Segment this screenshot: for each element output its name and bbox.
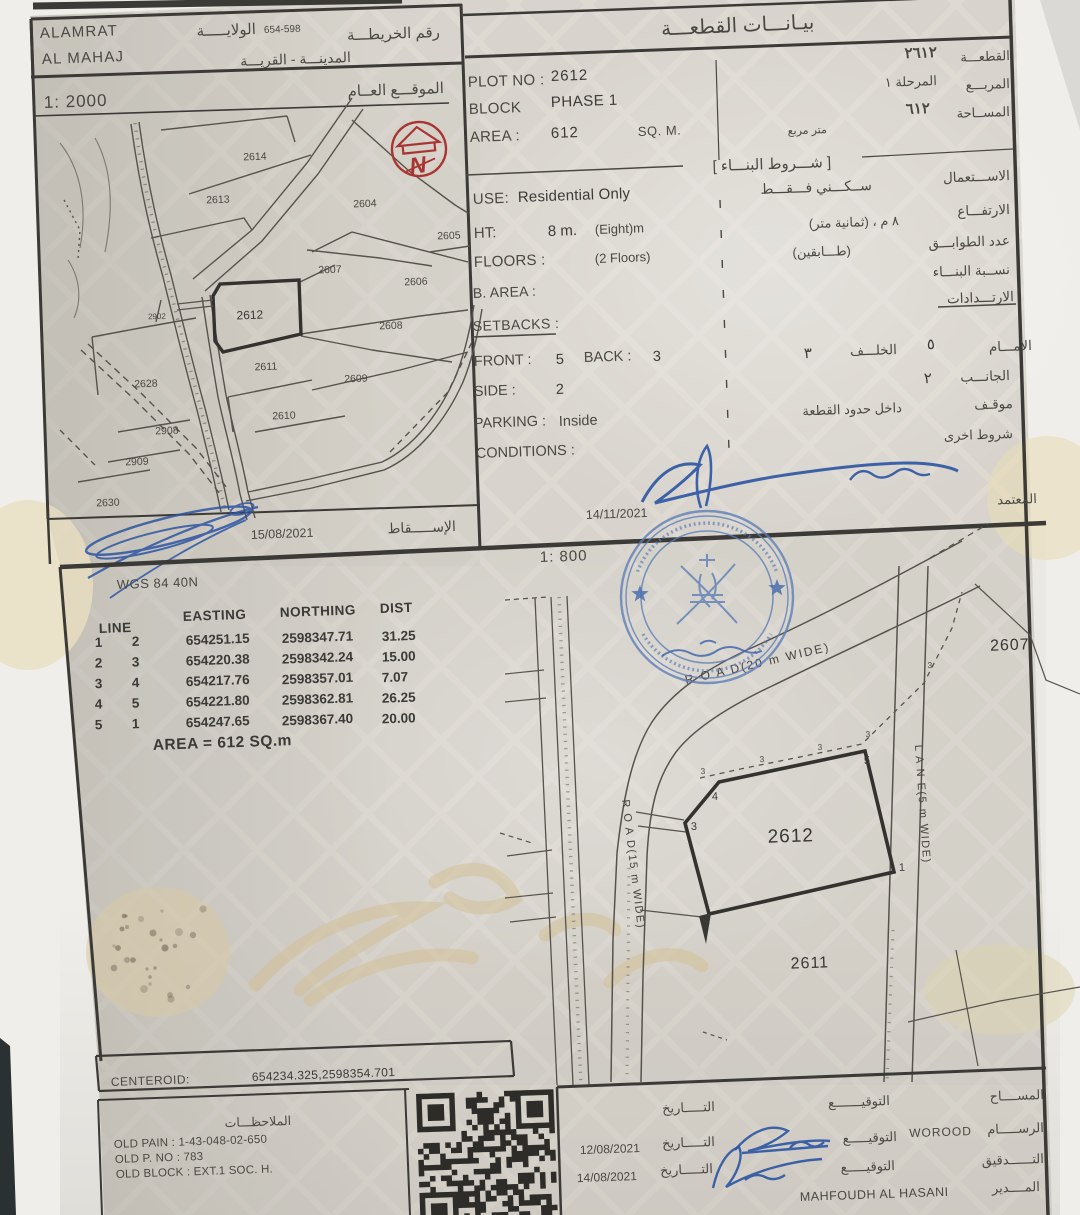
svg-text:5: 5: [95, 717, 104, 732]
svg-text:المســاحة: المســاحة: [956, 104, 1010, 121]
svg-text:2612: 2612: [236, 308, 263, 323]
svg-text:التـــــاريخ: التـــــاريخ: [660, 1161, 713, 1179]
svg-text:2609: 2609: [344, 373, 368, 386]
svg-text:2598342.24: 2598342.24: [282, 649, 354, 666]
svg-text:نســبة البنـــاء: نســبة البنـــاء: [933, 262, 1011, 280]
svg-text:التوقيـــــع: التوقيـــــع: [842, 1129, 897, 1147]
svg-text:2612: 2612: [767, 825, 814, 848]
svg-text:PARKING :: PARKING :: [474, 413, 547, 432]
svg-text:EASTING: EASTING: [183, 607, 247, 624]
svg-text:WOROOD: WOROOD: [909, 1124, 972, 1140]
svg-text:2605: 2605: [437, 230, 461, 243]
svg-text:(2 Floors): (2 Floors): [595, 249, 651, 266]
svg-text:654247.65: 654247.65: [186, 713, 251, 730]
svg-text:Inside: Inside: [559, 413, 598, 430]
svg-text:SQ. M.: SQ. M.: [638, 122, 682, 139]
svg-text:1: 1: [899, 862, 906, 874]
svg-text:الارتفـــاع: الارتفـــاع: [957, 202, 1010, 220]
svg-text:PLOT NO :: PLOT NO :: [468, 71, 545, 91]
svg-text:654220.38: 654220.38: [186, 651, 251, 668]
svg-text:1: 1: [95, 635, 104, 650]
svg-text:20.00: 20.00: [382, 710, 416, 726]
svg-text:LINE: LINE: [99, 620, 132, 636]
svg-text:٦١٢: ٦١٢: [905, 100, 930, 118]
svg-text:3: 3: [759, 754, 764, 764]
svg-text:SIDE :: SIDE :: [474, 383, 516, 400]
svg-text:AREA :: AREA :: [470, 127, 521, 146]
svg-text:12/08/2021: 12/08/2021: [580, 1141, 641, 1157]
svg-text:2598347.71: 2598347.71: [282, 629, 354, 646]
svg-text:2604: 2604: [353, 198, 377, 211]
svg-text:14/11/2021: 14/11/2021: [586, 506, 648, 522]
svg-text:2598362.81: 2598362.81: [282, 690, 354, 707]
svg-text:4: 4: [95, 697, 104, 712]
svg-text:الرســـــام: الرســـــام: [987, 1120, 1044, 1138]
svg-text:31.25: 31.25: [382, 628, 417, 644]
svg-text:2613: 2613: [206, 194, 230, 207]
svg-text:NORTHING: NORTHING: [280, 602, 356, 620]
svg-text:3: 3: [865, 729, 870, 739]
svg-text:3: 3: [132, 654, 141, 669]
svg-text:2630: 2630: [96, 497, 120, 510]
svg-text:٥: ٥: [926, 336, 935, 353]
svg-text:٢٦١٢: ٢٦١٢: [904, 44, 937, 62]
svg-text:4: 4: [132, 675, 141, 690]
svg-text:المربـــع: المربـــع: [965, 76, 1010, 94]
svg-text:المرحلة ١: المرحلة ١: [884, 73, 937, 91]
svg-text:الموقـــع العــام: الموقـــع العــام: [347, 80, 444, 100]
svg-text:654251.15: 654251.15: [186, 631, 251, 648]
svg-text:BLOCK: BLOCK: [469, 99, 522, 118]
svg-text:2611: 2611: [254, 361, 277, 374]
svg-text:2608: 2608: [379, 320, 403, 333]
svg-text:4: 4: [712, 791, 719, 803]
svg-text:2: 2: [132, 634, 140, 649]
svg-text:3: 3: [691, 821, 698, 833]
svg-text:612: 612: [551, 124, 580, 142]
svg-text:الخلـــف: الخلـــف: [850, 342, 897, 359]
svg-text:2: 2: [95, 655, 103, 670]
svg-text:1: 1: [132, 716, 141, 731]
svg-text:2614: 2614: [243, 151, 267, 164]
svg-text:B. AREA :: B. AREA :: [473, 283, 537, 301]
svg-text:التـــــاريخ: التـــــاريخ: [662, 1134, 715, 1152]
svg-text:3: 3: [927, 660, 932, 670]
svg-text:1: 800: 1: 800: [540, 547, 588, 566]
svg-text:الاســـتعمال: الاســـتعمال: [943, 168, 1010, 185]
svg-text:PHASE 1: PHASE 1: [551, 92, 618, 111]
svg-text:5: 5: [132, 696, 141, 711]
svg-text:3: 3: [817, 742, 822, 752]
svg-text:الولايـــــة: الولايـــــة: [196, 21, 256, 40]
svg-text:المعتمد: المعتمد: [997, 491, 1037, 507]
svg-text:موقـف: موقـف: [974, 396, 1013, 413]
svg-text:FLOORS :: FLOORS :: [474, 252, 546, 271]
svg-text:2612: 2612: [551, 67, 589, 85]
svg-text:7.07: 7.07: [382, 669, 409, 685]
svg-text:2607: 2607: [318, 264, 342, 277]
svg-text:26.25: 26.25: [382, 690, 417, 706]
svg-text:2902: 2902: [148, 312, 167, 322]
svg-text:ALAMRAT: ALAMRAT: [40, 22, 119, 42]
svg-text:3: 3: [95, 676, 104, 691]
svg-text:DIST: DIST: [380, 600, 414, 616]
svg-text:15/08/2021: 15/08/2021: [251, 526, 314, 542]
svg-text:14/08/2021: 14/08/2021: [577, 1169, 638, 1185]
svg-text:1: 2000: 1: 2000: [43, 91, 107, 112]
svg-text:654217.76: 654217.76: [186, 672, 251, 689]
svg-text:USE:: USE:: [473, 190, 510, 208]
svg-text:2: 2: [704, 915, 711, 927]
svg-text:WGS 84 40N: WGS 84 40N: [117, 574, 199, 592]
svg-text:5: 5: [864, 755, 871, 767]
svg-text:2909: 2909: [125, 456, 149, 469]
svg-text:2606: 2606: [404, 276, 428, 289]
svg-text:2: 2: [556, 382, 565, 398]
svg-text:رقم الخريطـــة: رقم الخريطـــة: [347, 24, 441, 44]
svg-text:القطعـــة: القطعـــة: [960, 48, 1010, 65]
svg-text:2610: 2610: [272, 410, 296, 423]
svg-text:المــــدير: المــــدير: [991, 1179, 1040, 1197]
svg-text:654-598: 654-598: [264, 24, 301, 36]
svg-text:SETBACKS :: SETBACKS :: [473, 315, 560, 334]
svg-text:٢: ٢: [923, 370, 932, 387]
svg-text:2607: 2607: [990, 636, 1030, 654]
svg-text:الامـــام: الامـــام: [989, 338, 1033, 355]
svg-text:2908: 2908: [155, 425, 179, 438]
svg-text:التوقيـــــع: التوقيـــــع: [840, 1158, 895, 1176]
svg-text:BACK :: BACK :: [584, 348, 632, 366]
svg-text:متر مربع: متر مربع: [787, 124, 827, 137]
svg-text:المســــاح: المســــاح: [989, 1087, 1044, 1105]
svg-text:2611: 2611: [790, 954, 829, 972]
svg-text:FRONT :: FRONT :: [474, 352, 532, 370]
svg-text:15.00: 15.00: [382, 648, 416, 664]
svg-text:٣: ٣: [803, 345, 812, 362]
svg-text:8 m.: 8 m.: [548, 222, 578, 240]
svg-text:الملاحظـــات: الملاحظـــات: [224, 1114, 291, 1130]
svg-text:التـــــاريخ: التـــــاريخ: [662, 1099, 715, 1117]
svg-text:654221.80: 654221.80: [186, 693, 250, 710]
svg-text:CENTEROID:: CENTEROID:: [111, 1072, 190, 1089]
svg-text:AL MAHAJ: AL MAHAJ: [42, 48, 125, 68]
svg-text:2598367.40: 2598367.40: [282, 711, 354, 728]
svg-text:2628: 2628: [134, 378, 158, 391]
svg-text:3: 3: [653, 349, 662, 365]
svg-text:الجانـــب: الجانـــب: [960, 368, 1010, 385]
svg-text:5: 5: [556, 352, 565, 368]
svg-text:(Eight)m: (Eight)m: [595, 220, 645, 237]
svg-text:HT:: HT:: [474, 224, 497, 242]
svg-text:3: 3: [700, 766, 705, 776]
svg-text:2598357.01: 2598357.01: [282, 670, 354, 687]
